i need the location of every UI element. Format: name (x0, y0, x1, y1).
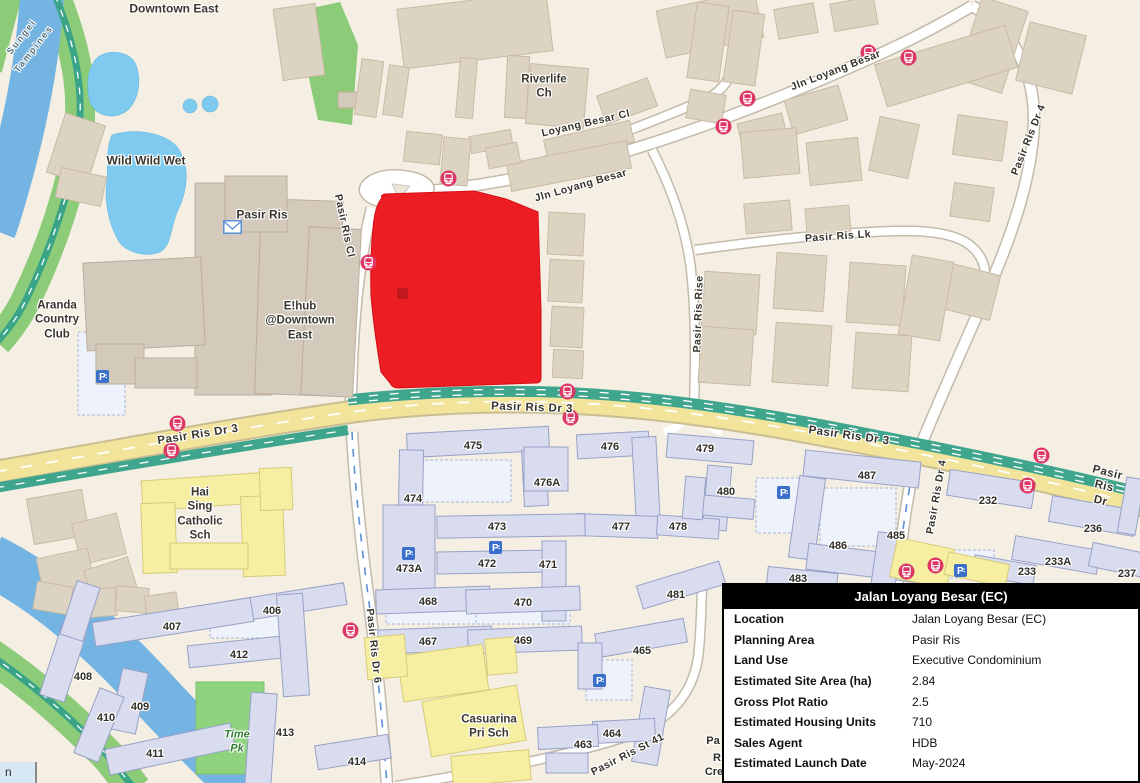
building (259, 467, 292, 510)
building (524, 447, 568, 491)
info-row-label: Estimated Launch Date (724, 756, 912, 770)
building (846, 262, 906, 326)
building (774, 3, 819, 39)
info-row-label: Location (724, 612, 912, 626)
building (552, 349, 583, 379)
building (525, 64, 588, 129)
info-row-value: Executive Condominium (912, 653, 1138, 667)
building (484, 637, 517, 675)
parking-icon-under-plot (397, 288, 408, 299)
info-row-value: May-2024 (912, 756, 1138, 770)
building (115, 586, 149, 614)
building (592, 718, 655, 743)
info-row-value: 710 (912, 715, 1138, 729)
info-table-body: LocationJalan Loyang Besar (EC)Planning … (724, 609, 1138, 774)
info-row-value: 2.5 (912, 695, 1138, 709)
info-row: Gross Plot Ratio2.5 (724, 691, 1138, 712)
building (437, 514, 585, 539)
building (852, 332, 912, 392)
info-row: Planning AreaPasir Ris (724, 630, 1138, 651)
building (632, 436, 660, 521)
building (383, 505, 435, 590)
info-row-value: Pasir Ris (912, 633, 1138, 647)
building (537, 724, 598, 749)
info-row: Estimated Housing Units710 (724, 712, 1138, 733)
building (952, 115, 1007, 162)
info-row-label: Gross Plot Ratio (724, 695, 912, 709)
info-row-value: HDB (912, 736, 1138, 750)
building (773, 252, 827, 311)
info-panel-title: Jalan Loyang Besar (EC) (724, 585, 1138, 609)
building (437, 550, 555, 574)
building (364, 634, 408, 679)
building (578, 643, 602, 689)
building (806, 137, 862, 185)
info-row-value: Jalan Loyang Besar (EC) (912, 612, 1138, 626)
info-row: LocationJalan Loyang Besar (EC) (724, 609, 1138, 630)
building (404, 131, 443, 165)
info-row: Land UseExecutive Condominium (724, 650, 1138, 671)
building (547, 212, 585, 256)
building (225, 176, 287, 232)
building (33, 581, 73, 615)
building (440, 137, 471, 186)
building (546, 753, 588, 773)
info-row-label: Sales Agent (724, 736, 912, 750)
info-row: Estimated Site Area (ha)2.84 (724, 671, 1138, 692)
info-panel: Jalan Loyang Besar (EC) LocationJalan Lo… (722, 583, 1140, 783)
building (682, 476, 706, 520)
info-row: Sales AgentHDB (724, 733, 1138, 754)
building (135, 358, 197, 388)
building (466, 586, 581, 614)
building (170, 543, 248, 569)
building (701, 271, 760, 335)
building (398, 450, 423, 510)
building (83, 257, 205, 351)
map-attribution-fragment: n (0, 762, 37, 783)
info-row-label: Planning Area (724, 633, 912, 647)
building (504, 55, 529, 118)
building (740, 128, 800, 179)
info-row-label: Estimated Housing Units (724, 715, 912, 729)
building (301, 227, 362, 397)
building (576, 514, 659, 539)
building (805, 205, 851, 237)
info-row-label: Estimated Site Area (ha) (724, 674, 912, 688)
building (686, 89, 726, 124)
building (744, 200, 792, 234)
red-plot-jalan-loyang-besar-ec[interactable] (371, 191, 541, 388)
building (772, 322, 832, 386)
building (548, 259, 584, 303)
building (550, 306, 584, 348)
info-row: Estimated Launch DateMay-2024 (724, 753, 1138, 774)
building (697, 495, 755, 520)
info-row-label: Land Use (724, 653, 912, 667)
building (698, 326, 754, 385)
building (950, 182, 994, 221)
info-row-value: 2.84 (912, 674, 1138, 688)
